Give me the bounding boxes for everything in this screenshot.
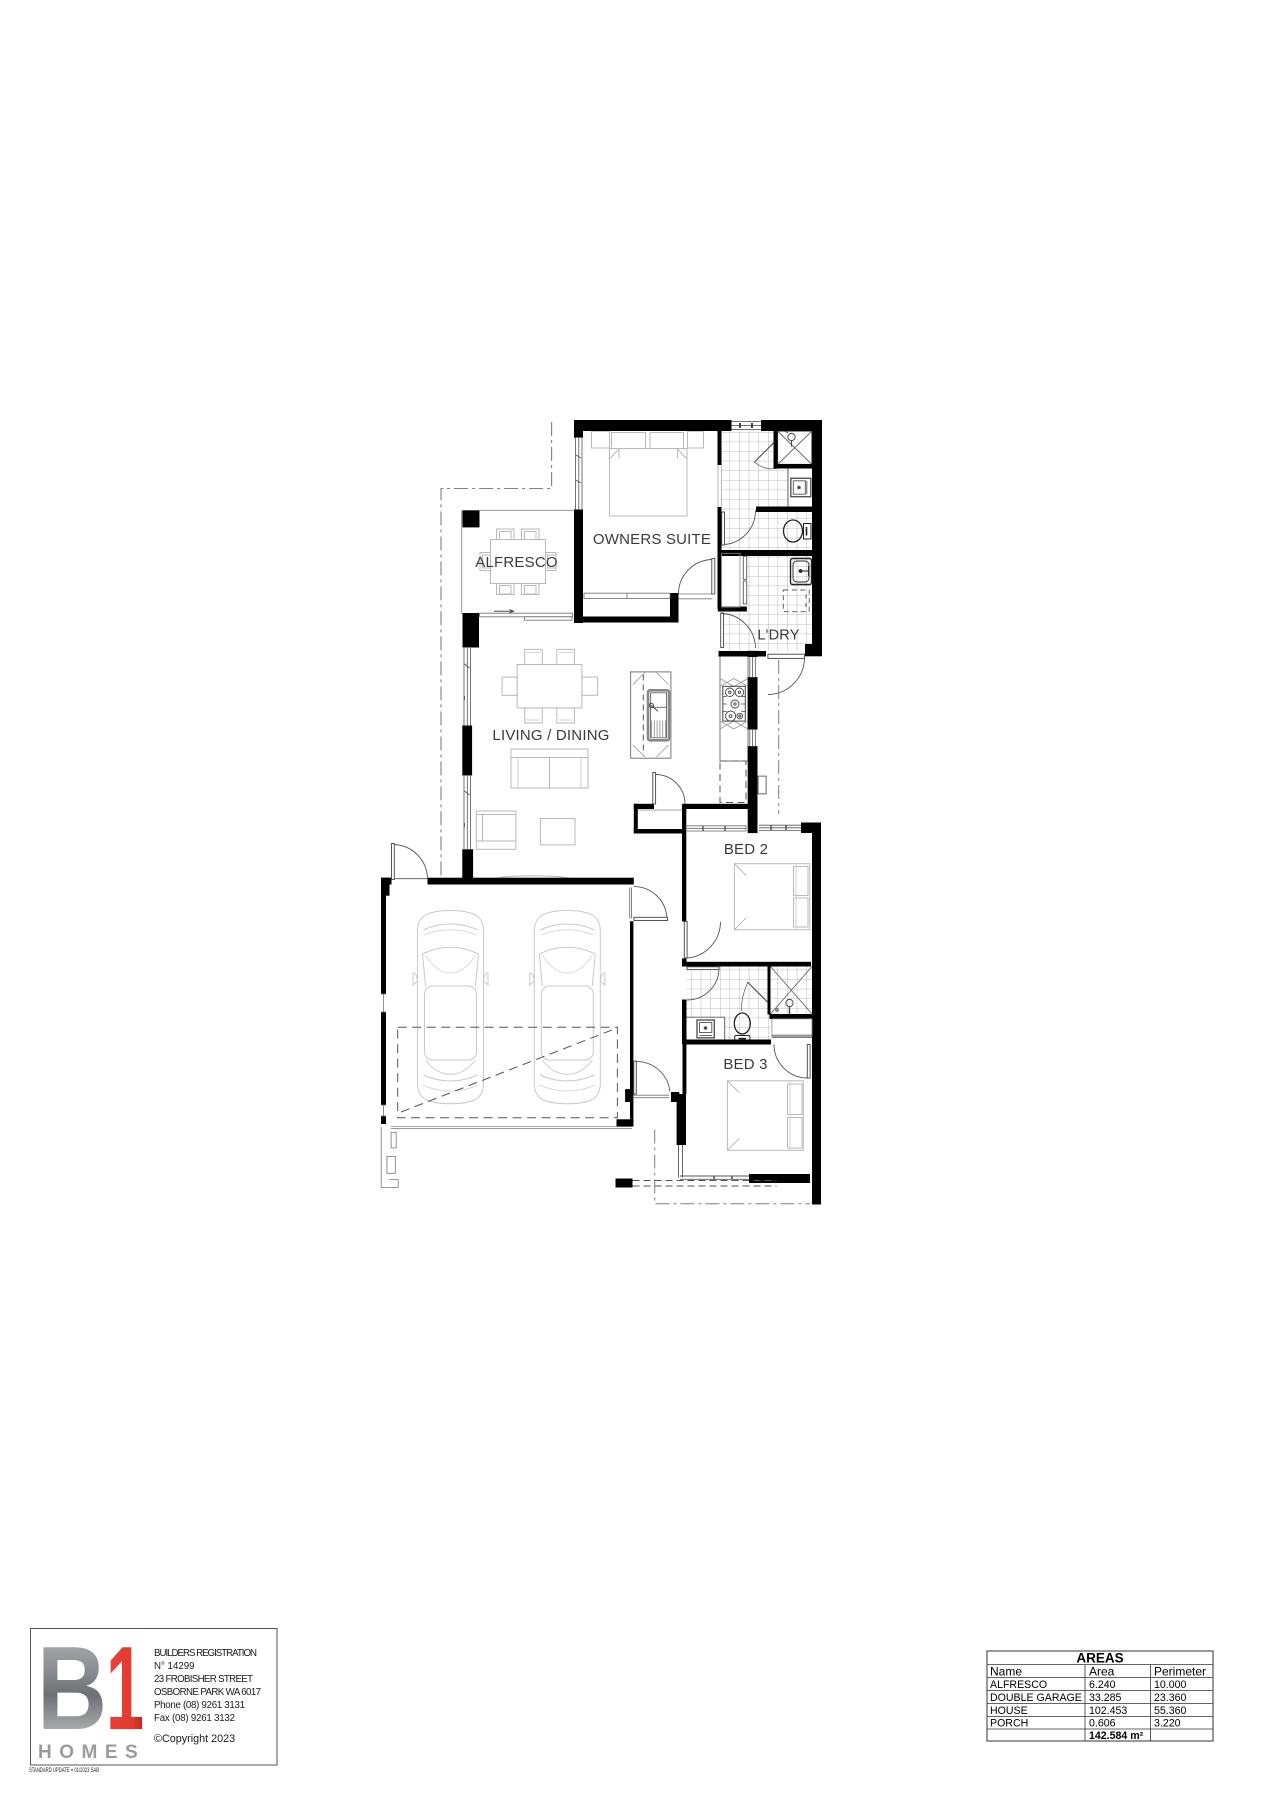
- svg-text:6.240: 6.240: [1089, 1679, 1116, 1691]
- svg-text:BUILDERS REGISTRATION: BUILDERS REGISTRATION: [154, 1648, 257, 1659]
- svg-text:OWNERS SUITE: OWNERS SUITE: [593, 531, 711, 548]
- svg-text:23.360: 23.360: [1154, 1692, 1187, 1704]
- svg-text:102.453: 102.453: [1089, 1705, 1127, 1717]
- svg-text:ALFRESCO: ALFRESCO: [990, 1679, 1047, 1691]
- svg-text:Area: Area: [1089, 1665, 1115, 1679]
- svg-text:PORCH: PORCH: [990, 1718, 1028, 1730]
- svg-text:3.220: 3.220: [1154, 1718, 1181, 1730]
- svg-text:B: B: [37, 1622, 107, 1755]
- svg-text:OSBORNE PARK WA 6017: OSBORNE PARK WA 6017: [154, 1687, 261, 1698]
- svg-text:HOMES: HOMES: [38, 1742, 145, 1763]
- svg-text:142.584 m²: 142.584 m²: [1089, 1730, 1144, 1742]
- svg-text:DOUBLE GARAGE: DOUBLE GARAGE: [990, 1692, 1082, 1704]
- svg-text:0.606: 0.606: [1089, 1718, 1116, 1730]
- svg-text:10.000: 10.000: [1154, 1679, 1187, 1691]
- svg-text:Phone (08) 9261 3131: Phone (08) 9261 3131: [154, 1700, 245, 1711]
- svg-text:STANDARD UPDATE = 01/2023 SAB: STANDARD UPDATE = 01/2023 SAB: [29, 1767, 99, 1774]
- svg-text:N° 14299: N° 14299: [154, 1661, 195, 1672]
- svg-text:BED 3: BED 3: [723, 1056, 767, 1073]
- svg-text:HOUSE: HOUSE: [990, 1705, 1028, 1717]
- svg-text:ALFRESCO: ALFRESCO: [475, 554, 557, 571]
- svg-text:Fax (08) 9261 3132: Fax (08) 9261 3132: [154, 1713, 235, 1724]
- svg-text:©Copyright 2023: ©Copyright 2023: [154, 1733, 235, 1745]
- svg-text:Perimeter: Perimeter: [1154, 1665, 1206, 1679]
- svg-text:33.285: 33.285: [1089, 1692, 1122, 1704]
- svg-text:23 FROBISHER STREET: 23 FROBISHER STREET: [154, 1674, 253, 1685]
- svg-text:AREAS: AREAS: [1076, 1651, 1123, 1666]
- svg-text:1: 1: [106, 1622, 144, 1755]
- svg-text:BED 2: BED 2: [724, 841, 768, 858]
- svg-text:L'DRY: L'DRY: [757, 628, 799, 644]
- svg-text:55.360: 55.360: [1154, 1705, 1187, 1717]
- svg-text:Name: Name: [990, 1665, 1022, 1679]
- svg-text:LIVING / DINING: LIVING / DINING: [492, 727, 609, 744]
